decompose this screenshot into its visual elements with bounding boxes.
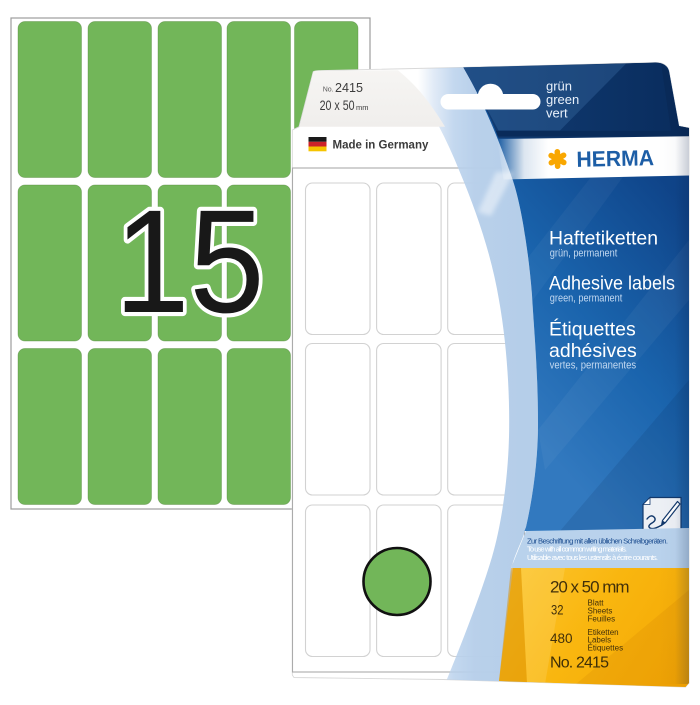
svg-text:No. 2415: No. 2415 (550, 654, 609, 671)
svg-text:Étiquettes: Étiquettes (588, 644, 624, 653)
svg-text:Utilisable avec tous les usten: Utilisable avec tous les ustensils à écr… (527, 553, 658, 562)
svg-text:vert: vert (546, 106, 568, 121)
svg-text:Adhesive labels: Adhesive labels (549, 273, 675, 295)
svg-text:No.: No. (323, 86, 334, 93)
svg-text:Feuilles: Feuilles (588, 615, 616, 624)
svg-text:2415: 2415 (335, 80, 363, 95)
svg-text:vertes, permanentes: vertes, permanentes (550, 359, 637, 371)
svg-text:green, permanent: green, permanent (550, 292, 623, 304)
svg-text:Made in Germany: Made in Germany (333, 140, 429, 152)
svg-text:480: 480 (550, 631, 573, 646)
svg-text:grün, permanent: grün, permanent (550, 248, 618, 260)
svg-text:20 x 50: 20 x 50 (320, 98, 355, 113)
svg-text:15: 15 (115, 180, 265, 344)
svg-text:HERMA: HERMA (576, 145, 654, 172)
svg-text:32: 32 (551, 603, 564, 618)
svg-text:mm: mm (356, 103, 369, 112)
svg-text:Haftetiketten: Haftetiketten (549, 228, 658, 250)
svg-text:20 x 50 mm: 20 x 50 mm (550, 577, 630, 596)
svg-text:Étiquettes: Étiquettes (549, 317, 636, 340)
